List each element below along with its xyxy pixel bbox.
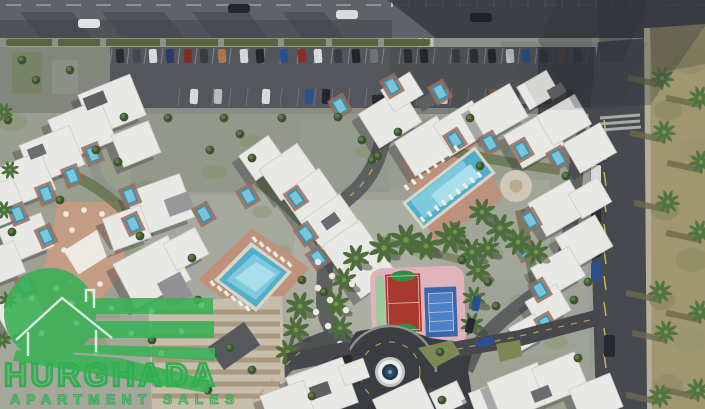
svg-text:HURGHADA: HURGHADA <box>4 357 218 393</box>
svg-text:APARTMENT SALES: APARTMENT SALES <box>10 391 240 407</box>
